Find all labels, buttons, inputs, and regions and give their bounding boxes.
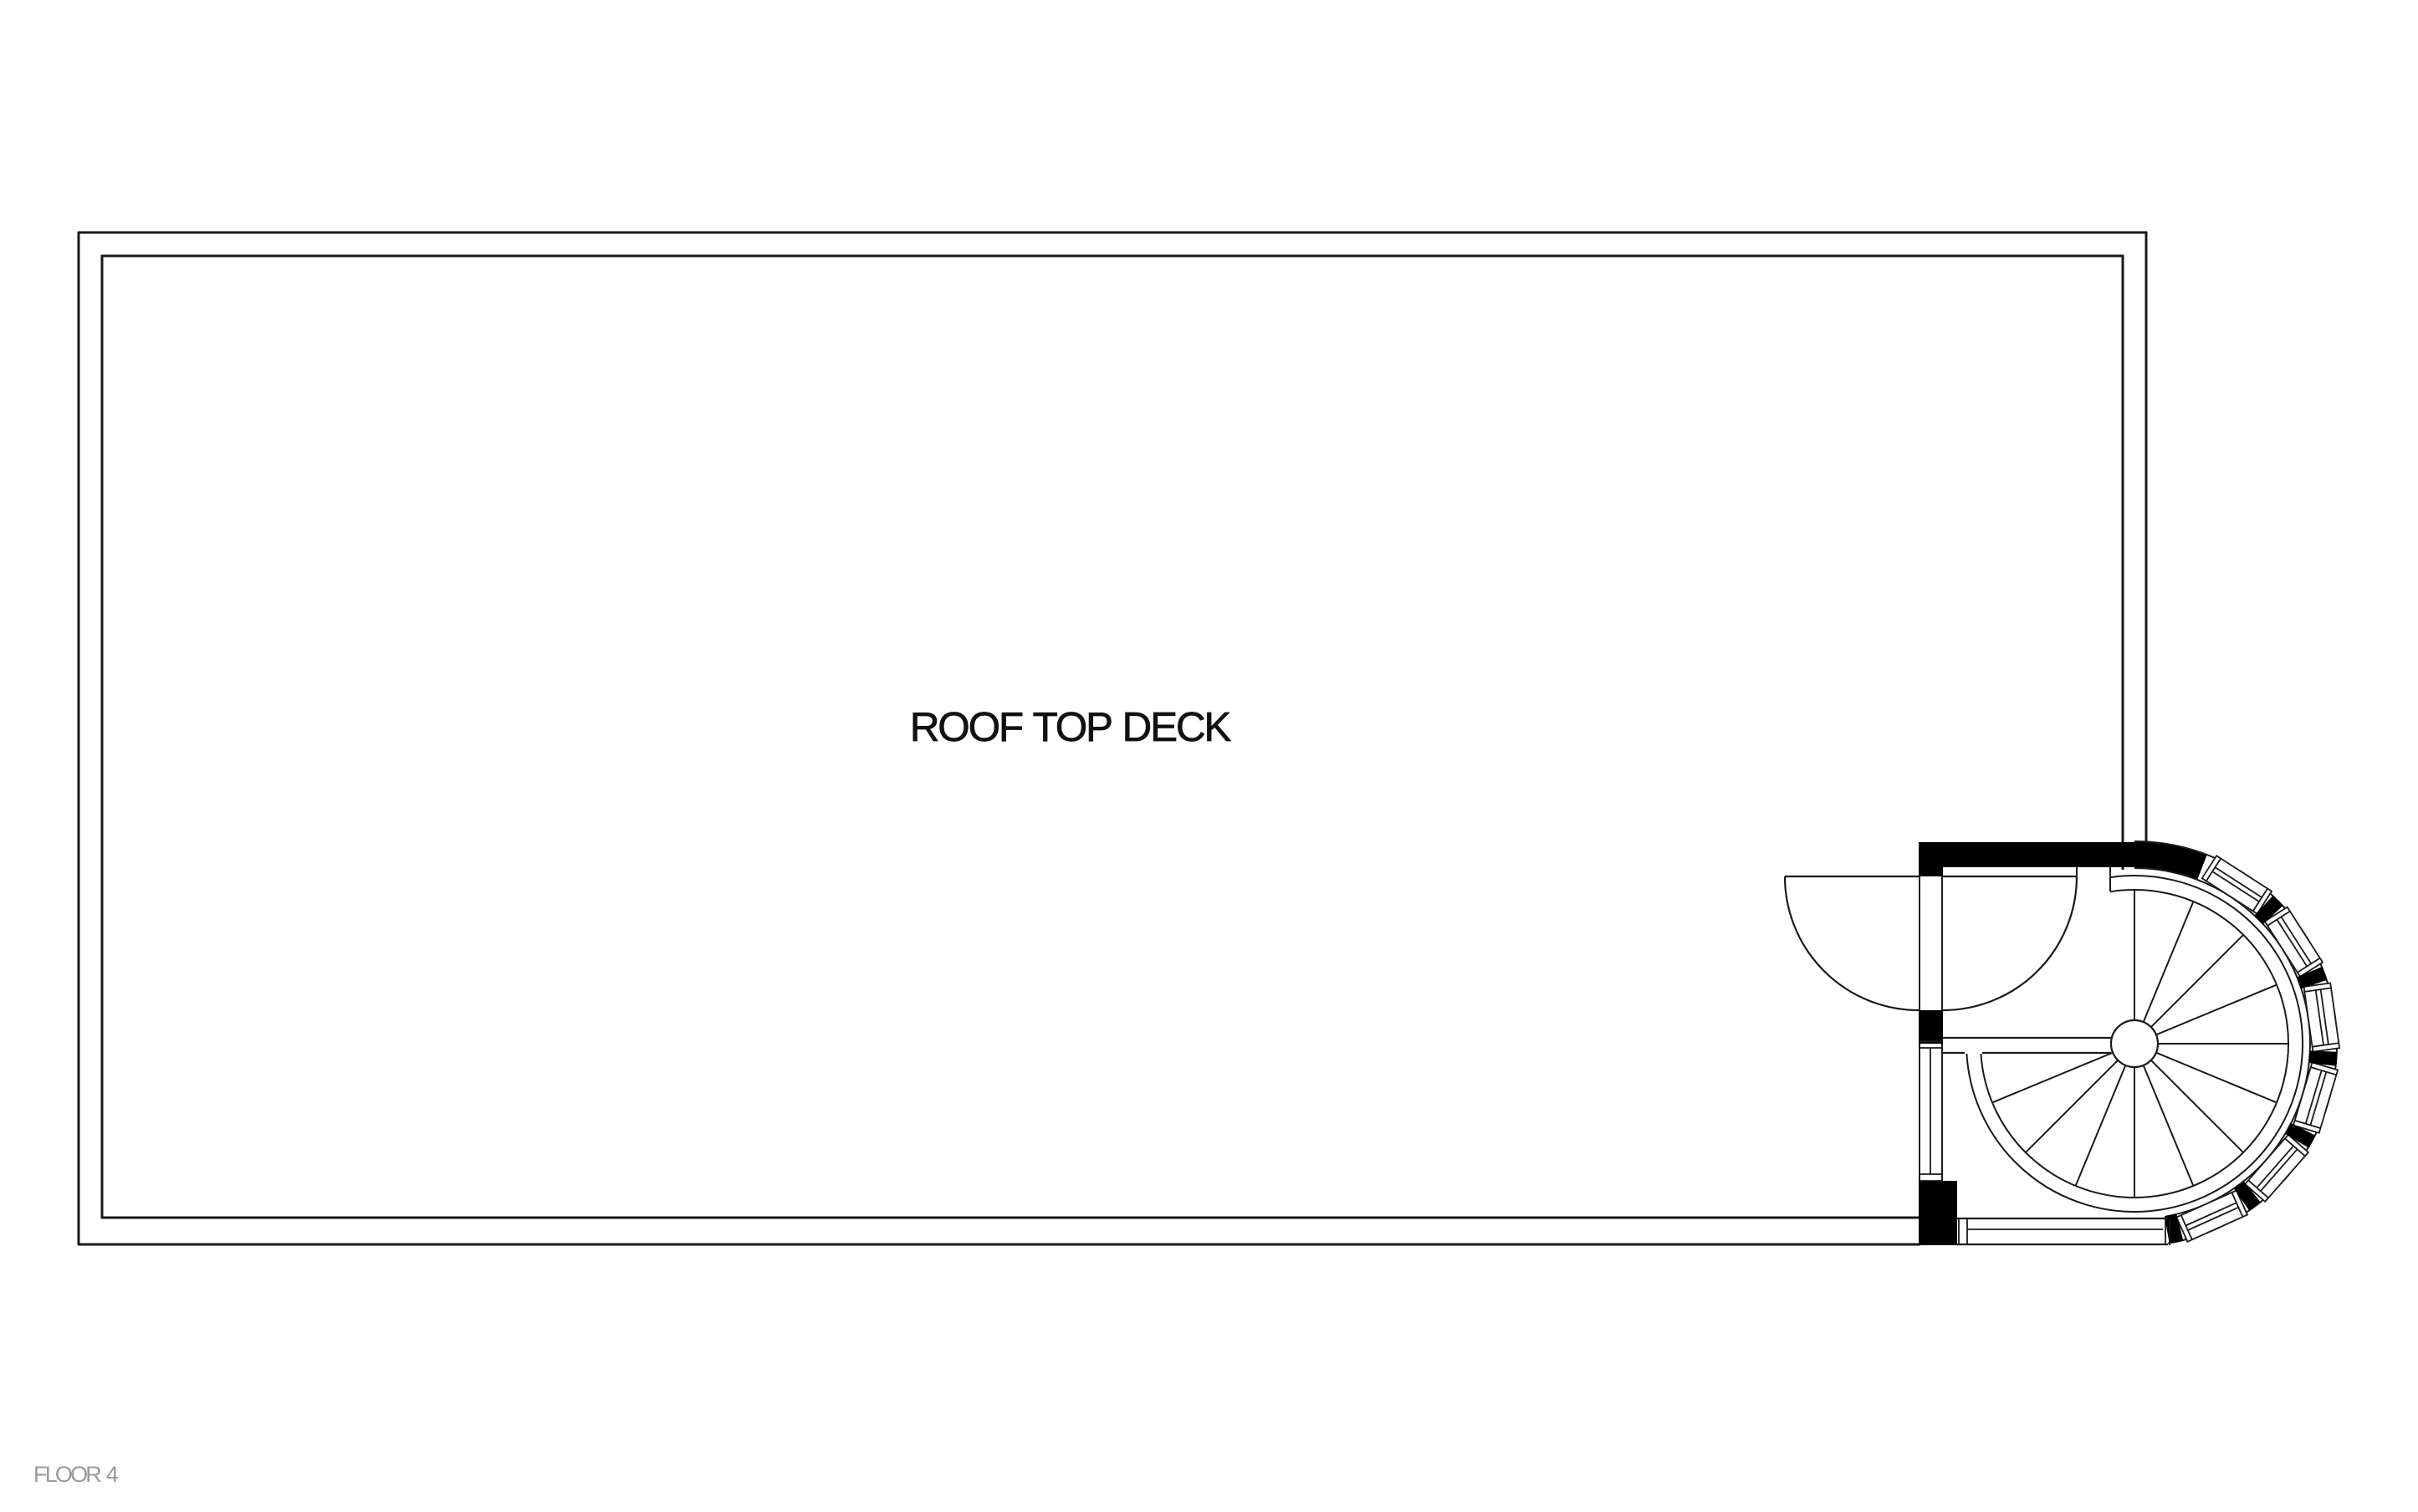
svg-text:ROOF TOP DECK: ROOF TOP DECK xyxy=(910,704,1232,750)
svg-text:FLOOR 4: FLOOR 4 xyxy=(33,1462,119,1487)
